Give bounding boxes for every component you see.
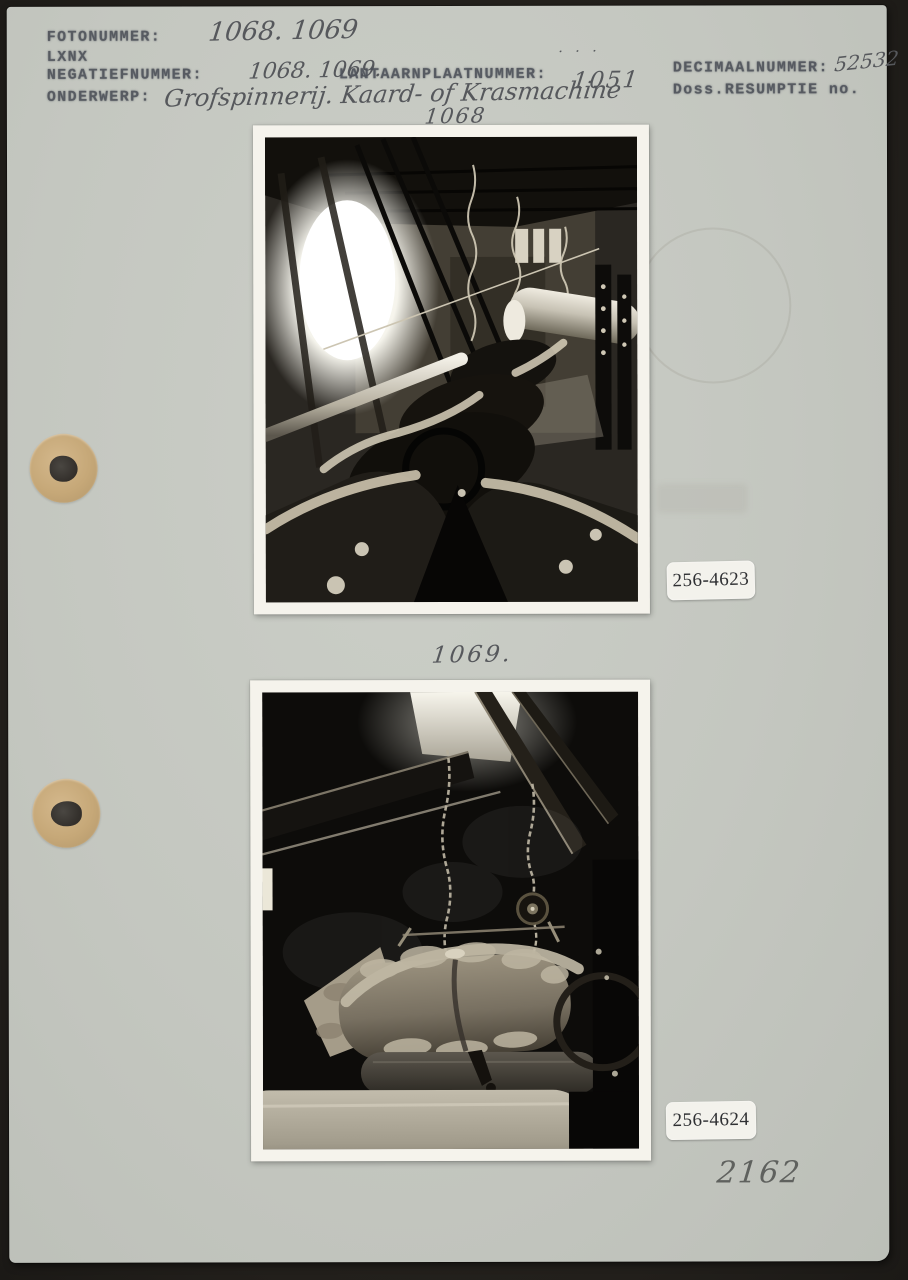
punch-hole-bottom-pit [51, 801, 82, 826]
onderwerp-label: ONDERWERP: [47, 89, 151, 106]
fotonummer-value: 1068. 1069 [207, 15, 360, 48]
punch-hole-top [30, 434, 98, 503]
card-header: FOTONUMMER: 1068. 1069 LXNX NEGATIEFNUMM… [7, 5, 887, 7]
photo-bottom-image [262, 692, 639, 1150]
series-stamp: LXNX [47, 49, 89, 66]
scan-background: FOTONUMMER: 1068. 1069 LXNX NEGATIEFNUMM… [0, 0, 908, 1280]
punch-hole-top-pit [50, 455, 78, 481]
inventory-sticker-bottom: 256-4624 [666, 1101, 757, 1140]
lantaarnplaat-dots: . . . [558, 39, 602, 56]
inventory-sticker-top: 256-4623 [666, 560, 755, 600]
inventory-sticker-top-label: 256-4623 [672, 569, 749, 593]
embossed-stamp-ghost [635, 227, 791, 383]
archive-card: FOTONUMMER: 1068. 1069 LXNX NEGATIEFNUMM… [7, 5, 890, 1263]
decimaalnummer-label: DECIMAALNUMMER: [673, 59, 829, 76]
onderwerp-value: Grofspinnerij. Kaard- of Krasmachine [163, 76, 623, 113]
punch-hole-bottom [32, 779, 100, 848]
photo-top-print [253, 125, 650, 615]
photo-bottom-caption: 1069. [430, 641, 514, 669]
decimaalnummer-value: 52532 [834, 46, 900, 77]
negatiefnummer-label: NEGATIEFNUMMER: [47, 67, 203, 84]
fotonummer-label: FOTONUMMER: [47, 29, 161, 46]
photo-top-image [265, 137, 638, 603]
ink-bleed-ghost [656, 483, 748, 513]
photo-bottom-print [250, 680, 651, 1162]
doss-resumptie-label: Doss.RESUMPTIE no. [673, 81, 860, 98]
pencil-number: 2162 [715, 1155, 803, 1190]
inventory-sticker-bottom-label: 256-4624 [672, 1109, 749, 1132]
